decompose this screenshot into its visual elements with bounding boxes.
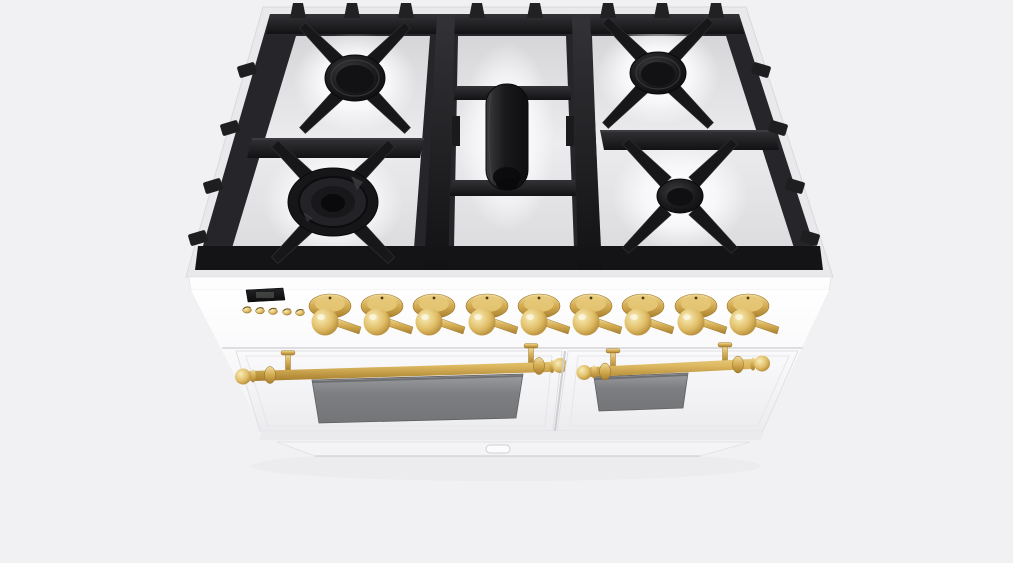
clock-display: [246, 288, 285, 302]
kick-panel: [277, 442, 750, 456]
clock-button[interactable]: [243, 307, 252, 313]
right-oven-door[interactable]: [557, 343, 798, 432]
kick-panel-latch[interactable]: [486, 445, 510, 453]
clock-button[interactable]: [296, 309, 305, 315]
bottom-groove: [259, 431, 764, 440]
cooktop-front-lip: [189, 277, 831, 290]
cooktop: [186, 3, 833, 277]
left-oven-door[interactable]: [235, 344, 568, 432]
product-render: [0, 0, 1013, 563]
center-griddle-burner: [486, 84, 528, 190]
clock-button[interactable]: [269, 308, 278, 314]
clock-button[interactable]: [256, 308, 265, 314]
range: [186, 3, 833, 456]
clock-button[interactable]: [283, 309, 292, 315]
